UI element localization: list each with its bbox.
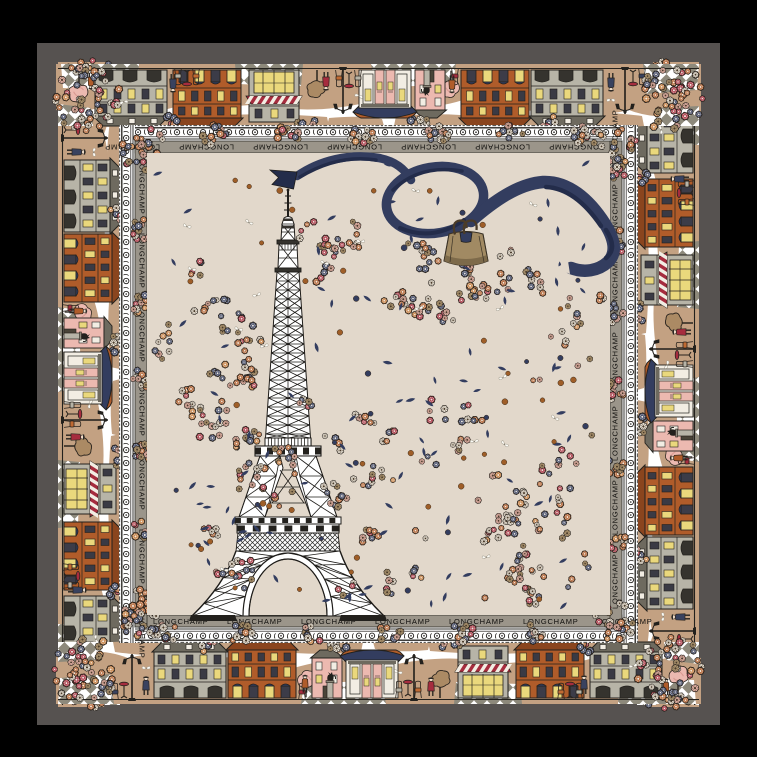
svg-text:LONGCHAMP: LONGCHAMP [611, 479, 620, 535]
svg-text:LONGCHAMP: LONGCHAMP [474, 143, 530, 152]
svg-text:LONGCHAMP: LONGCHAMP [252, 143, 308, 152]
svg-text:LONGCHAMP: LONGCHAMP [400, 143, 456, 152]
svg-text:LONGCHAMP: LONGCHAMP [611, 405, 620, 461]
svg-text:LONGCHAMP: LONGCHAMP [138, 455, 147, 511]
